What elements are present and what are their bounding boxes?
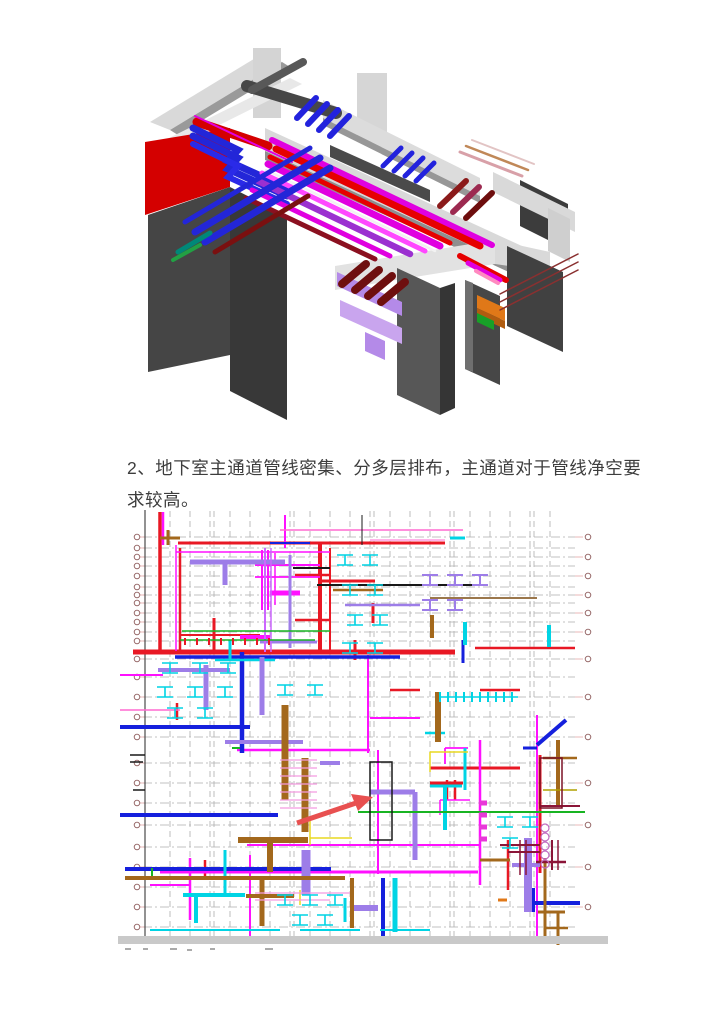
document-page: 2、地下室主通道管线密集、分多层排布，主通道对于管线净空要 求较高。 — [0, 0, 724, 1024]
cad-floor-plan-image — [115, 505, 611, 953]
caption-line-1: 2、地下室主通道管线密集、分多层排布，主通道对于管线净空要 — [127, 452, 619, 484]
bim-3d-render-image — [140, 40, 585, 436]
cad-plan-figure — [115, 505, 611, 953]
bim-3d-render-figure — [140, 40, 585, 436]
